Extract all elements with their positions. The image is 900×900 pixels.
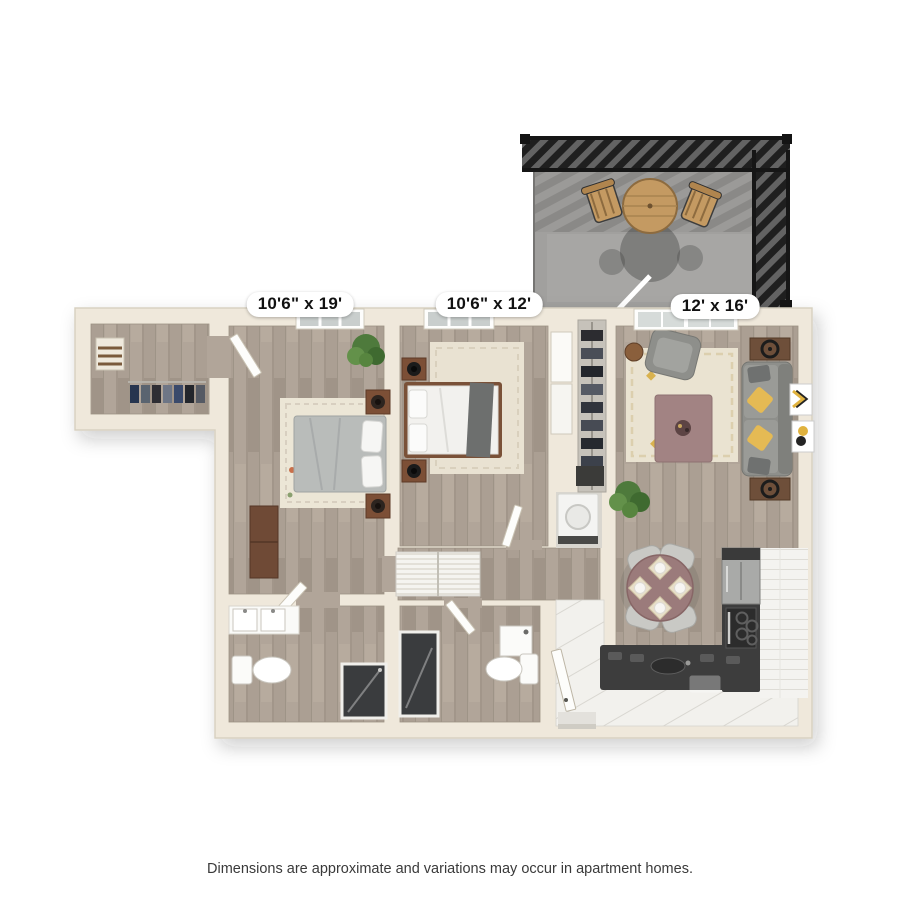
dimension-label-bedroom-1: 10'6" x 19' [247,292,354,317]
bathroom-2-shower [400,632,438,716]
bedroom-1-bed [294,416,386,492]
balcony-railing-top [522,136,790,172]
range [726,608,758,648]
balcony-table [623,179,677,233]
floor-plan-render [0,0,900,900]
washer [558,494,598,544]
bathroom-1-shower [342,664,386,718]
sofa [742,362,792,476]
wall-art-frame-1 [790,384,812,415]
bathroom-1-toilet [232,656,291,684]
disclaimer-text: Dimensions are approximate and variation… [0,861,900,877]
bedroom-2-bed [404,382,502,458]
hall-wardrobe [576,320,606,492]
wall-art-frame-2 [792,421,814,452]
dining-area [620,542,700,635]
side-table [625,343,643,361]
entry-threshold [558,724,596,729]
backsplash-wall [760,548,808,698]
refrigerator [722,548,760,604]
coffee-table [655,395,712,462]
dimension-label-living-room: 12' x 16' [671,294,760,319]
floor-plan-page: 10'6" x 19' 10'6" x 12' 12' x 16' Dimens… [0,0,900,900]
storage-nook [576,466,604,486]
hanging-clothes [130,385,205,403]
balcony-railing-right [752,150,790,310]
bathroom-1-vanity [229,606,299,634]
bathroom-2-vanity [500,626,532,656]
counter-tray [690,676,720,692]
dimension-label-bedroom-2: 10'6" x 12' [436,292,543,317]
